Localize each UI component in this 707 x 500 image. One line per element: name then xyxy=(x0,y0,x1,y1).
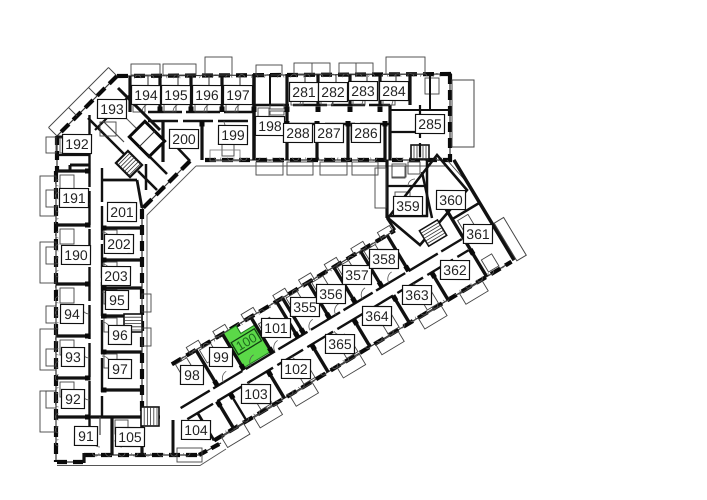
svg-text:364: 364 xyxy=(365,308,389,324)
svg-text:285: 285 xyxy=(418,116,442,132)
svg-text:198: 198 xyxy=(258,118,282,134)
svg-text:197: 197 xyxy=(226,87,250,103)
svg-text:287: 287 xyxy=(317,125,341,141)
svg-text:103: 103 xyxy=(244,386,268,402)
svg-text:284: 284 xyxy=(382,83,406,99)
svg-text:94: 94 xyxy=(64,306,80,322)
svg-text:288: 288 xyxy=(286,125,310,141)
svg-text:98: 98 xyxy=(184,367,200,383)
svg-text:355: 355 xyxy=(293,299,317,315)
svg-text:99: 99 xyxy=(213,349,229,365)
svg-text:193: 193 xyxy=(100,101,124,117)
svg-text:359: 359 xyxy=(396,198,420,214)
svg-text:192: 192 xyxy=(65,136,89,152)
svg-text:361: 361 xyxy=(466,226,490,242)
svg-text:286: 286 xyxy=(354,125,378,141)
svg-text:362: 362 xyxy=(443,262,467,278)
svg-text:199: 199 xyxy=(221,127,245,143)
svg-text:203: 203 xyxy=(104,268,128,284)
svg-text:281: 281 xyxy=(292,84,316,100)
svg-text:97: 97 xyxy=(112,361,128,377)
svg-text:358: 358 xyxy=(372,251,396,267)
svg-text:95: 95 xyxy=(109,292,125,308)
svg-text:96: 96 xyxy=(112,327,128,343)
svg-text:93: 93 xyxy=(65,349,81,365)
svg-text:91: 91 xyxy=(78,428,94,444)
svg-text:102: 102 xyxy=(284,361,308,377)
svg-text:104: 104 xyxy=(184,422,208,438)
svg-text:196: 196 xyxy=(195,87,219,103)
svg-text:202: 202 xyxy=(107,236,131,252)
svg-text:365: 365 xyxy=(328,336,352,352)
svg-text:190: 190 xyxy=(64,247,88,263)
svg-text:363: 363 xyxy=(405,287,429,303)
svg-text:200: 200 xyxy=(172,131,196,147)
svg-text:105: 105 xyxy=(118,429,142,445)
svg-text:283: 283 xyxy=(351,83,375,99)
svg-text:356: 356 xyxy=(319,286,343,302)
svg-text:195: 195 xyxy=(164,87,188,103)
svg-text:101: 101 xyxy=(264,320,288,336)
svg-text:191: 191 xyxy=(62,190,86,206)
svg-text:357: 357 xyxy=(345,267,369,283)
svg-text:194: 194 xyxy=(134,87,158,103)
svg-text:360: 360 xyxy=(439,192,463,208)
svg-text:92: 92 xyxy=(65,391,81,407)
svg-text:201: 201 xyxy=(110,204,134,220)
svg-text:282: 282 xyxy=(321,84,345,100)
